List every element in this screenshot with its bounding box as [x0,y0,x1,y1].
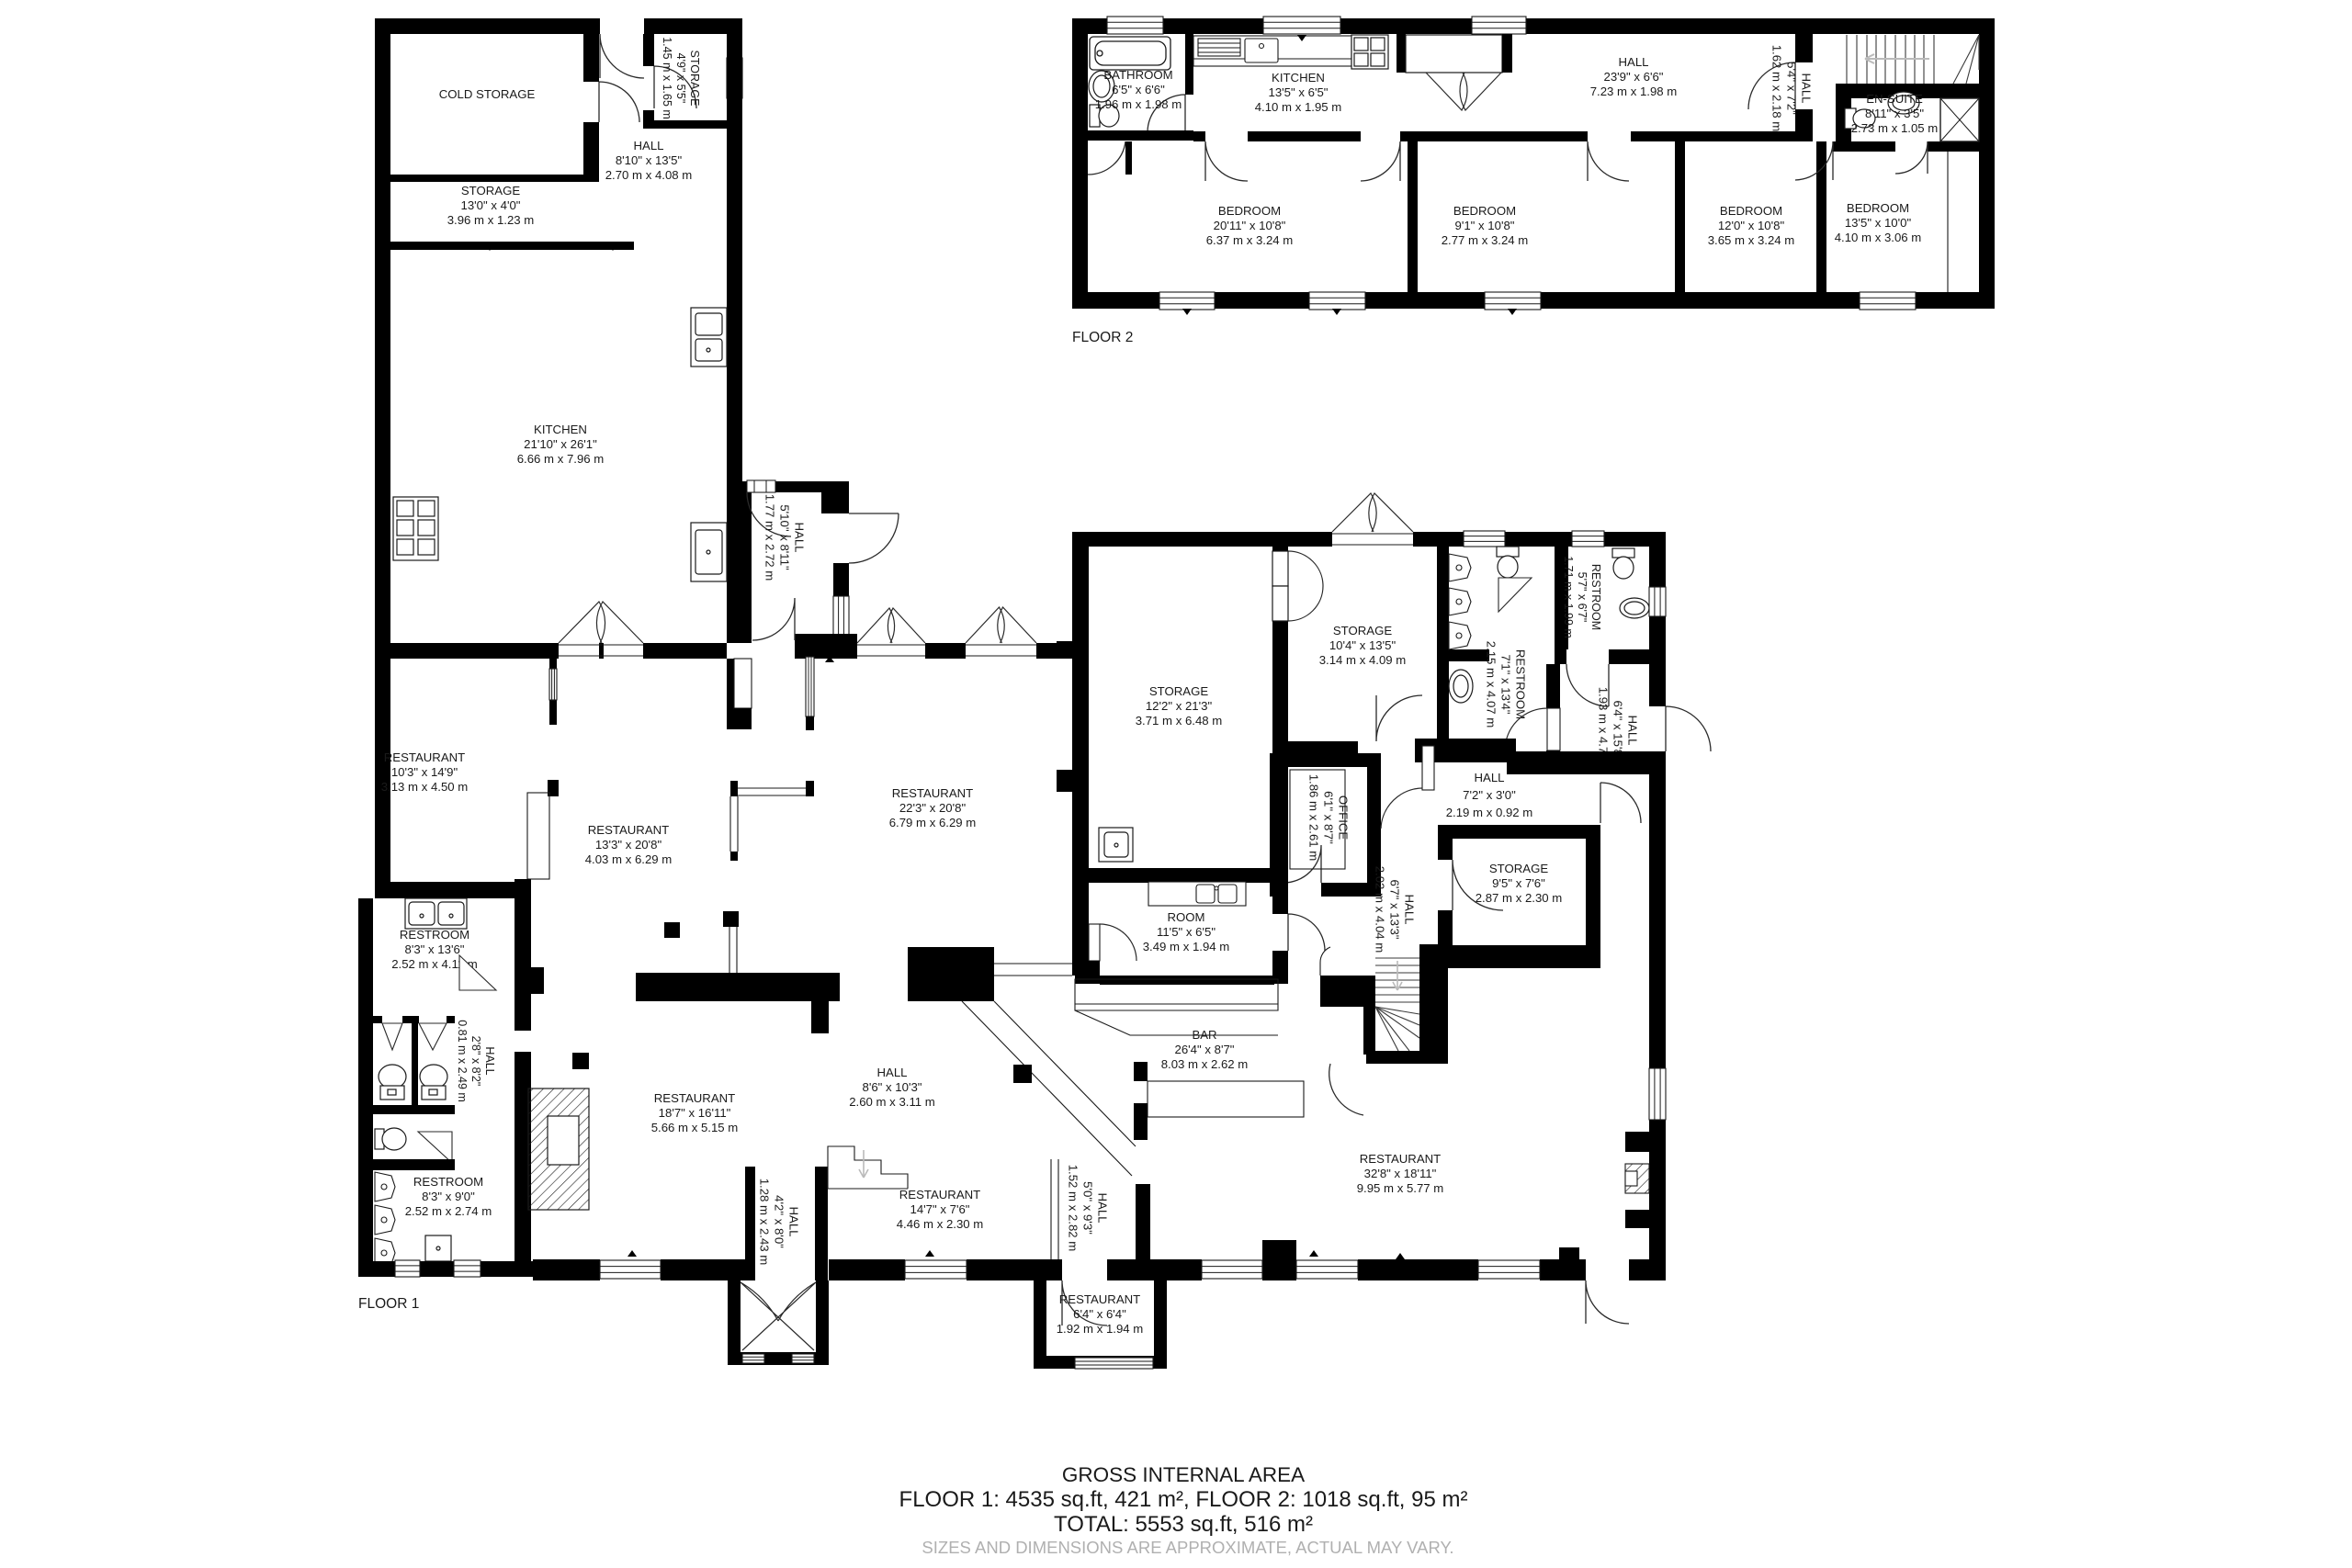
svg-text:RESTAURANT10'3" x 14'9"3.13 m: RESTAURANT10'3" x 14'9"3.13 m x 4.50 m [381,750,469,794]
svg-text:BEDROOM20'11" x 10'8"6.37 m x: BEDROOM20'11" x 10'8"6.37 m x 3.24 m [1206,204,1294,247]
svg-text:RESTAURANT22'3" x 20'8"6.79 m: RESTAURANT22'3" x 20'8"6.79 m x 6.29 m [889,786,977,829]
svg-text:SIZES AND DIMENSIONS ARE APPRO: SIZES AND DIMENSIONS ARE APPROXIMATE, AC… [922,1538,1453,1557]
svg-text:COLD STORAGE: COLD STORAGE [439,87,536,101]
svg-text:GROSS INTERNAL AREA: GROSS INTERNAL AREA [1062,1463,1305,1486]
svg-text:TOTAL: 5553 sq.ft, 516 m²: TOTAL: 5553 sq.ft, 516 m² [1054,1512,1313,1537]
svg-text:RESTAURANT13'3" x 20'8"4.03 m: RESTAURANT13'3" x 20'8"4.03 m x 6.29 m [585,823,673,866]
svg-text:FLOOR 1: FLOOR 1 [358,1296,419,1312]
svg-text:RESTAURANT32'8" x 18'11"9.95 m: RESTAURANT32'8" x 18'11"9.95 m x 5.77 m [1357,1152,1444,1195]
svg-text:FLOOR 2: FLOOR 2 [1072,330,1133,345]
svg-text:FLOOR 1: 4535 sq.ft, 421 m², F: FLOOR 1: 4535 sq.ft, 421 m², FLOOR 2: 10… [899,1487,1468,1512]
svg-text:BEDROOM12'0" x 10'8"3.65 m x 3: BEDROOM12'0" x 10'8"3.65 m x 3.24 m [1708,204,1795,247]
svg-text:RESTAURANT18'7" x 16'11"5.66 m: RESTAURANT18'7" x 16'11"5.66 m x 5.15 m [651,1091,739,1134]
svg-text:BEDROOM13'5" x 10'0"4.10 m x 3: BEDROOM13'5" x 10'0"4.10 m x 3.06 m [1835,201,1922,244]
